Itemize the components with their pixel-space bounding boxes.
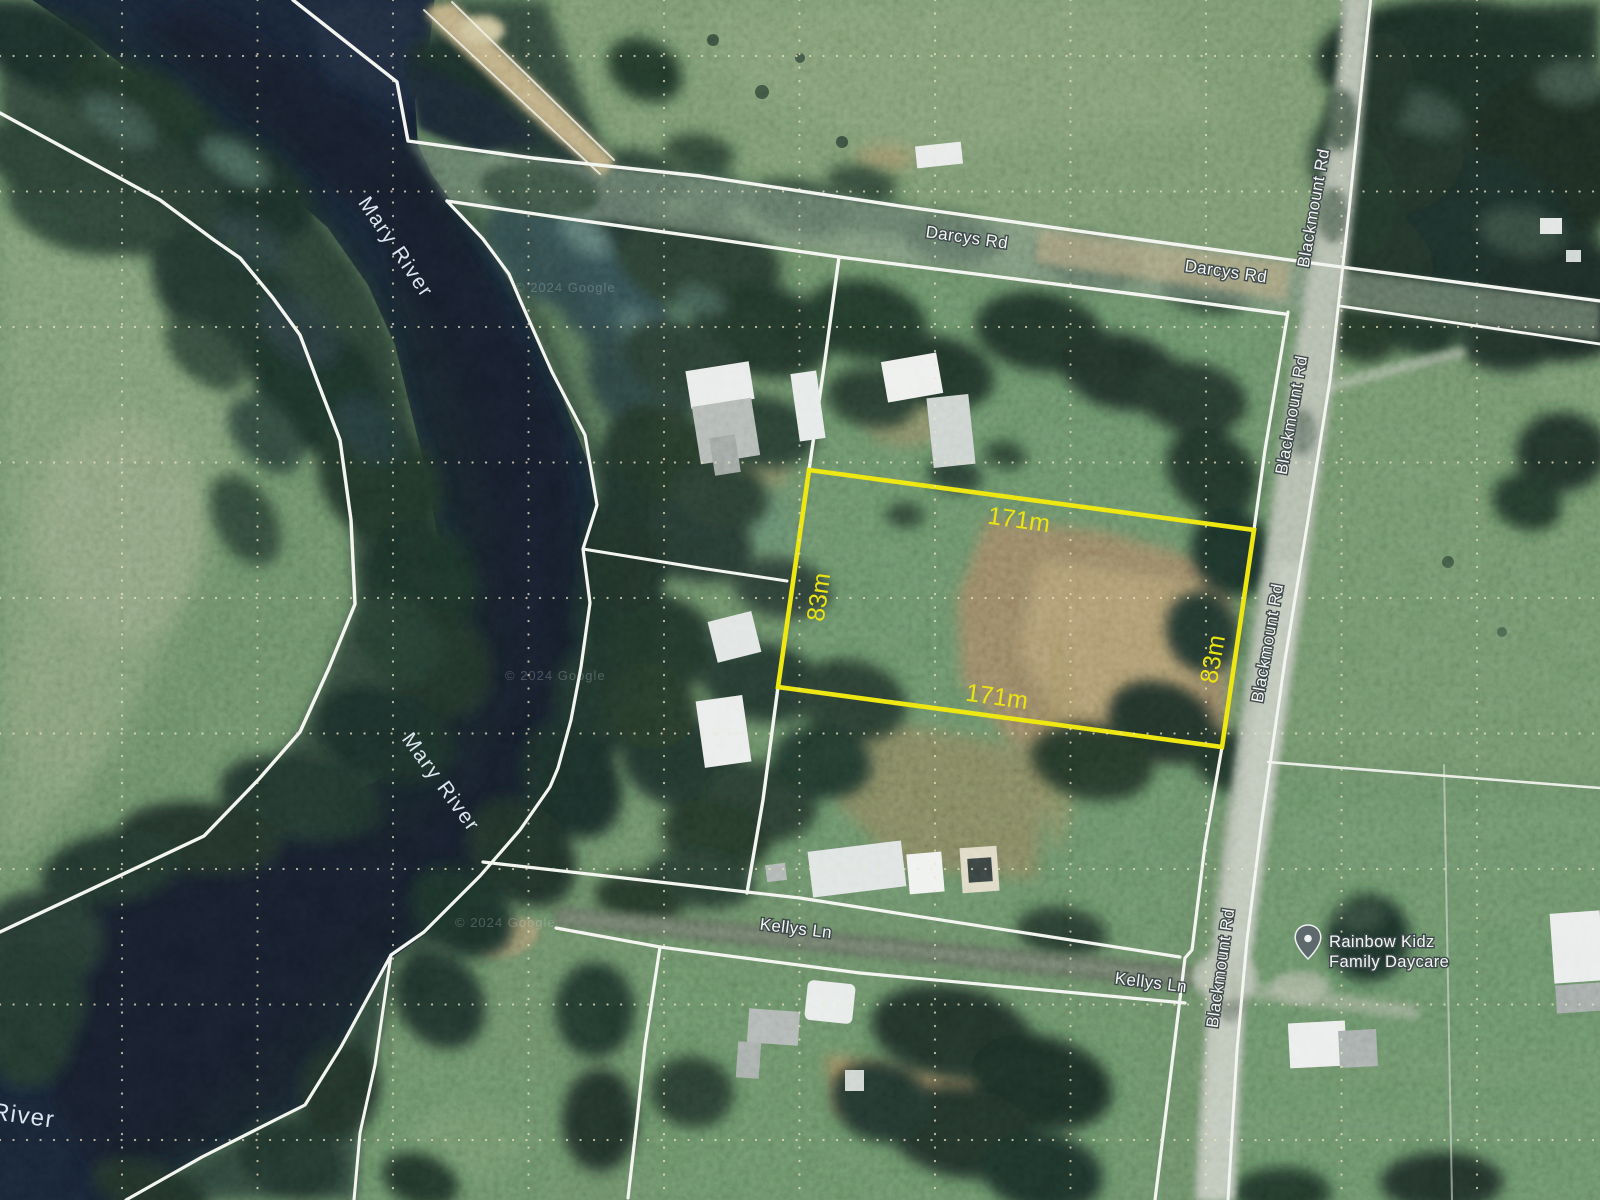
svg-text:© 2024 Google: © 2024 Google <box>455 915 556 930</box>
svg-text:© 2024 Google: © 2024 Google <box>505 668 606 683</box>
svg-text:© 2024 Google: © 2024 Google <box>515 280 616 295</box>
svg-text:Rainbow Kidz: Rainbow Kidz <box>1329 933 1435 951</box>
svg-text:Family Daycare: Family Daycare <box>1329 953 1449 971</box>
